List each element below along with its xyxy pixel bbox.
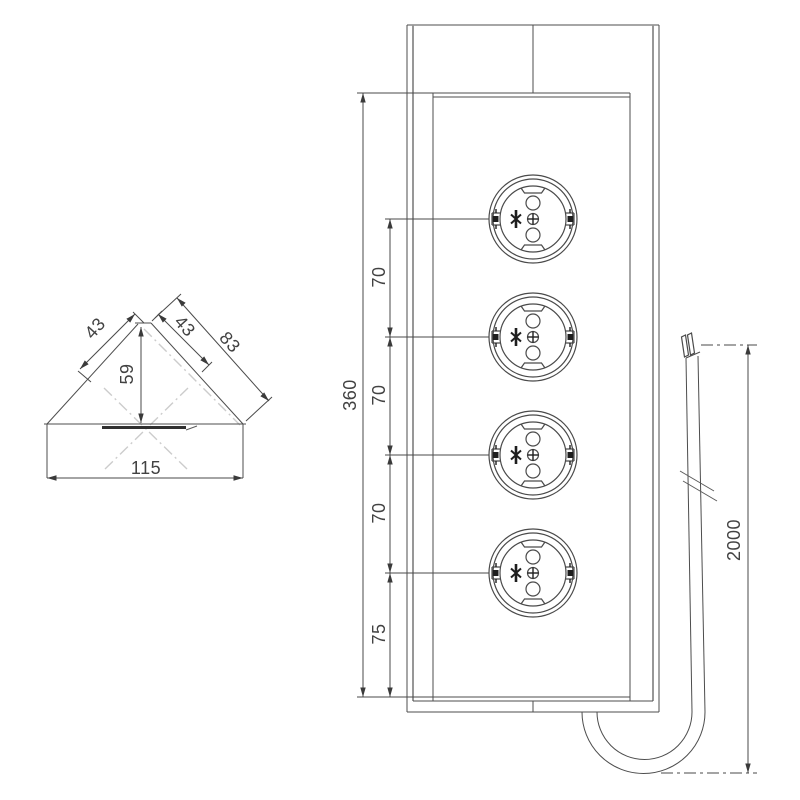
dim-base-width-115: 115 [47,458,243,481]
dim-label-75: 75 [369,623,389,644]
dim-cable-length-2000: 2000 [661,345,757,773]
dim-label-2000: 2000 [724,519,744,561]
dim-front-full-83: 83 [155,294,272,421]
dim-label-59: 59 [117,363,137,384]
socket-outlet-2 [489,293,577,381]
socket-group [489,175,577,617]
dim-height-59: 59 [117,327,144,423]
dim-label-70-3: 70 [369,502,389,523]
corner-profile-view: 59 43 43 83 [44,294,272,481]
corner-body [47,323,243,424]
dim-socket-spacing-chain: 70 70 70 75 [369,219,393,697]
dim-label-83: 83 [215,328,244,357]
socket-outlet-4 [489,529,577,617]
power-cable [582,333,717,773]
dim-label-70-1: 70 [369,266,389,287]
front-view: 360 70 70 70 75 [340,25,757,773]
socket-extension-lines [385,219,493,573]
dim-label-43-right: 43 [170,312,199,341]
dim-label-360: 360 [340,379,360,411]
technical-drawing-canvas: 59 43 43 83 [0,0,800,800]
dim-front-upper-43: 43 [152,311,212,372]
socket-outlet-1 [489,175,577,263]
dim-label-115: 115 [131,458,161,478]
socket-outlet-3 [489,411,577,499]
centerlines [104,329,240,470]
dim-label-70-2: 70 [369,384,389,405]
cable-break-symbol [680,471,717,501]
dim-label-43-left: 43 [81,314,110,343]
drawing-page: 59 43 43 83 [0,0,800,800]
